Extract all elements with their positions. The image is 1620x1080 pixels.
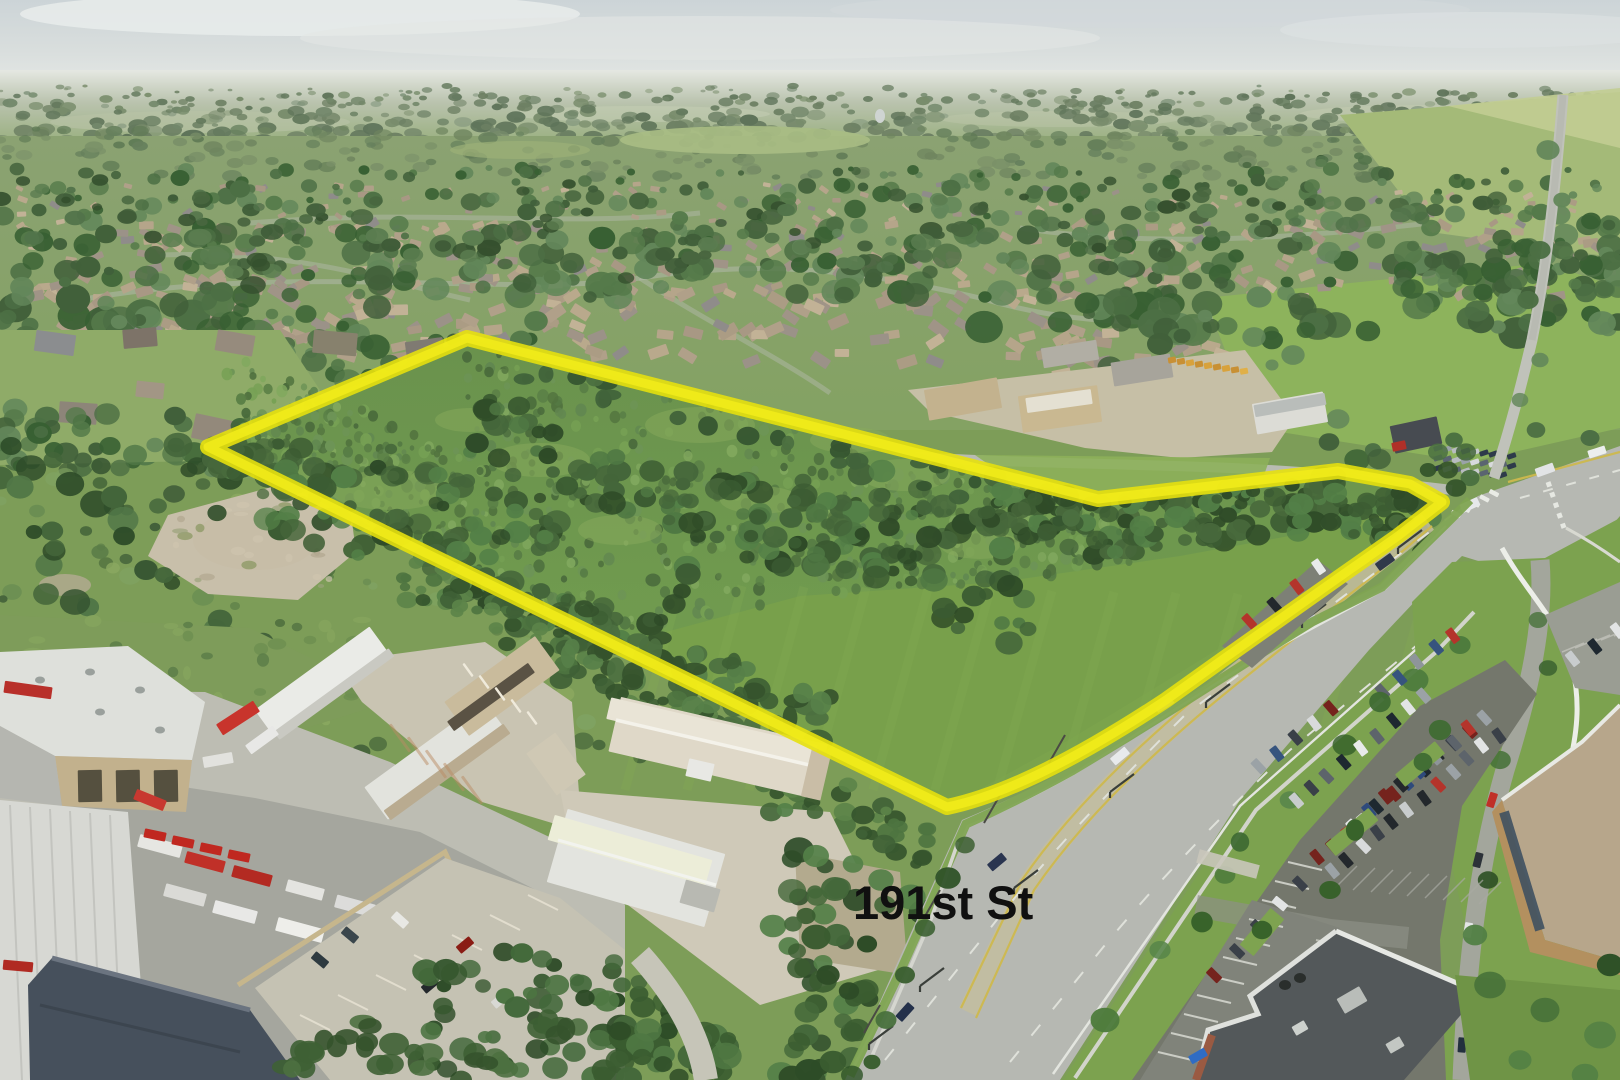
svg-text:191st St: 191st St [853,876,1034,929]
